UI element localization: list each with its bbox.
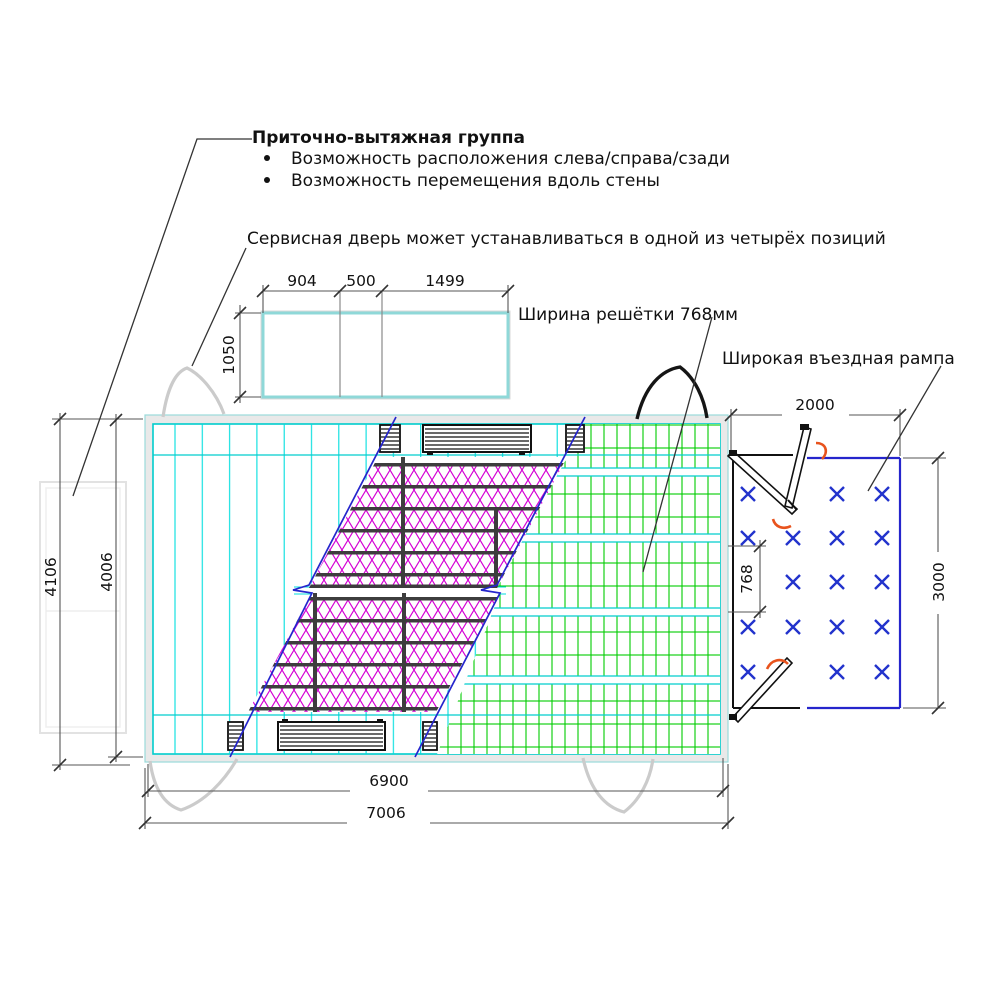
page-title: Приточно-вытяжная группа bbox=[252, 128, 525, 148]
door-arc-bottom-left bbox=[150, 759, 237, 810]
grille-top-full bbox=[423, 425, 531, 455]
dim-4106: 4106 bbox=[42, 557, 60, 596]
service-door-arc-top-left bbox=[163, 368, 224, 417]
door-leaf-c bbox=[733, 658, 792, 722]
dim-2000: 2000 bbox=[795, 396, 834, 414]
dim-1050: 1050 bbox=[220, 335, 238, 374]
dim-1499: 1499 bbox=[425, 272, 464, 290]
dim-7006: 7006 bbox=[366, 804, 405, 822]
bullet-dot-1 bbox=[264, 155, 270, 161]
ramp-x-marks bbox=[741, 487, 889, 679]
dim-3000: 3000 bbox=[930, 562, 948, 601]
mid-separator bbox=[294, 587, 506, 594]
door-leaf-b bbox=[785, 427, 811, 508]
dim-500: 500 bbox=[346, 272, 376, 290]
grille-bottom-full bbox=[278, 719, 385, 750]
dim-6900: 6900 bbox=[369, 772, 408, 790]
external-unit-ghost bbox=[40, 482, 126, 733]
bullet-2: Возможность перемещения вдоль стены bbox=[291, 171, 660, 191]
ramp-outline-blue bbox=[807, 458, 900, 708]
ramp-note: Широкая въездная рампа bbox=[722, 349, 955, 369]
dim-904: 904 bbox=[287, 272, 317, 290]
plan-drawing: Приточно-вытяжная группа Возможность рас… bbox=[0, 0, 1000, 1000]
bullet-dot-2 bbox=[264, 177, 270, 183]
service-door-detail bbox=[261, 291, 510, 399]
bullet-1: Возможность расположения слева/справа/сз… bbox=[291, 149, 730, 169]
door-arc-bottom-right bbox=[583, 758, 653, 812]
service-door-note: Сервисная дверь может устанавливаться в … bbox=[247, 229, 886, 249]
dim-4006: 4006 bbox=[98, 552, 116, 591]
grille-width-note: Ширина решётки 768мм bbox=[518, 305, 738, 325]
leader-ramp bbox=[868, 366, 941, 491]
cad-plan-page: Приточно-вытяжная группа Возможность рас… bbox=[0, 0, 1000, 1000]
dim-768: 768 bbox=[738, 564, 756, 594]
